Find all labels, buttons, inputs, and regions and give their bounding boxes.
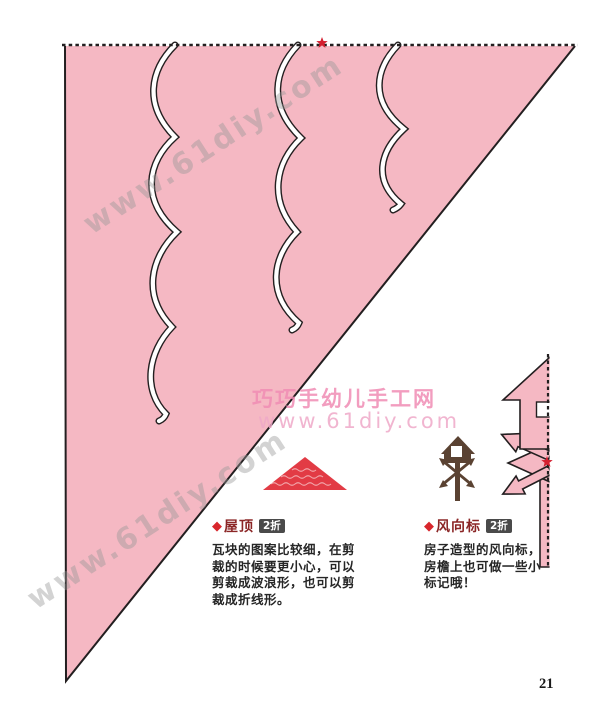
section-roof-body: 瓦块的图案比较细，在剪 裁的时候要更小心，可以 剪裁成波浪形，也可以剪 裁成折线… bbox=[212, 542, 382, 608]
book-page: www.61diy.com www.61diy.com 巧巧手幼儿手工网 www… bbox=[0, 0, 600, 720]
weathervane-illustration bbox=[439, 436, 475, 501]
diamond-bullet-icon: ◆ bbox=[424, 520, 434, 533]
section-vane-title: 风向标 bbox=[436, 516, 481, 536]
diamond-bullet-icon: ◆ bbox=[212, 520, 222, 533]
body-line: 标记哦！ bbox=[424, 575, 589, 592]
template-notch bbox=[537, 402, 552, 417]
section-vane-body: 房子造型的风向标， 房檐上也可做一些小 标记哦！ bbox=[424, 542, 589, 592]
section-roof: ◆ 屋顶 2折 瓦块的图案比较细，在剪 裁的时候要更小心，可以 剪裁成波浪形，也… bbox=[212, 517, 382, 608]
watermark-site-url: www.61diy.com bbox=[252, 410, 460, 432]
body-line: 剪裁成波浪形，也可以剪 bbox=[212, 575, 382, 592]
body-line: 裁的时候要更小心，可以 bbox=[212, 559, 382, 576]
watermark-site-name: 巧巧手幼儿手工网 bbox=[252, 388, 460, 410]
section-vane: ◆ 风向标 2折 房子造型的风向标， 房檐上也可做一些小 标记哦！ bbox=[424, 517, 589, 592]
section-vane-header: ◆ 风向标 2折 bbox=[424, 517, 589, 535]
page-number: 21 bbox=[539, 676, 554, 693]
body-line: 房子造型的风向标， bbox=[424, 542, 589, 559]
body-line: 房檐上也可做一些小 bbox=[424, 559, 589, 576]
body-line: 裁成折线形。 bbox=[212, 592, 382, 609]
fold-count-badge: 2折 bbox=[259, 519, 285, 533]
section-roof-title: 屋顶 bbox=[224, 516, 254, 536]
body-line: 瓦块的图案比较细，在剪 bbox=[212, 542, 382, 559]
fold-count-badge: 2折 bbox=[486, 519, 512, 533]
section-roof-header: ◆ 屋顶 2折 bbox=[212, 517, 382, 535]
watermark-center: 巧巧手幼儿手工网 www.61diy.com bbox=[252, 388, 460, 432]
